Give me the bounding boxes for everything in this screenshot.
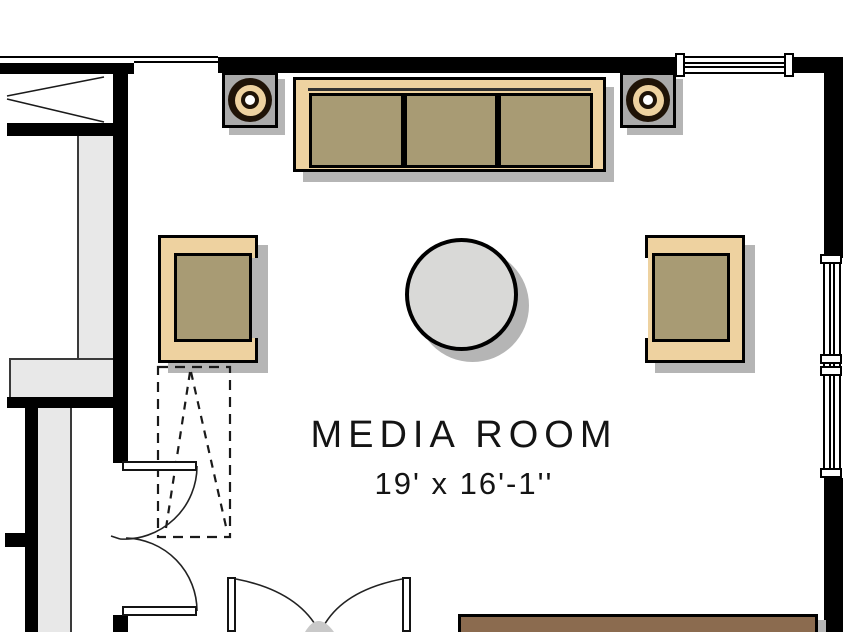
speaker-right xyxy=(620,72,676,128)
wall-stub-west xyxy=(5,533,25,547)
door-swing-arc-lower xyxy=(126,538,197,611)
window-right-cap-top xyxy=(820,254,842,264)
wall-jamb-bottom-left xyxy=(113,615,128,632)
french-door-leaf-left xyxy=(227,577,236,632)
wall-right-upper xyxy=(824,57,843,258)
sofa-cushion xyxy=(404,93,499,168)
sofa-cushion xyxy=(498,93,593,168)
armchair-right-cushion xyxy=(652,253,730,342)
wall-right-lower xyxy=(824,478,843,632)
room-name-label: MEDIA ROOM xyxy=(244,414,684,457)
window-right-cap-mullion-a xyxy=(820,354,842,364)
wall-top-exterior-line xyxy=(0,56,218,58)
wall-left-lower xyxy=(25,408,38,632)
sofa-cushions xyxy=(309,93,593,168)
dashed-overhead-outline xyxy=(158,367,230,537)
opening-header-line xyxy=(134,61,218,63)
sofa xyxy=(293,77,606,172)
armchair-right-notch xyxy=(631,258,648,338)
wall-left-ledge-top xyxy=(7,123,113,136)
adjacent-wall-fill-upper xyxy=(77,136,113,362)
cased-opening-marker xyxy=(7,77,104,122)
floor-plan: MEDIA ROOM 19' x 16'-1'' xyxy=(0,0,843,632)
speaker-left-cone-icon xyxy=(228,78,272,122)
wall-left-ledge-bottom xyxy=(7,397,113,408)
french-door-leaf-right xyxy=(402,577,411,632)
window-top-glazing-line xyxy=(681,62,789,64)
round-table xyxy=(405,238,518,351)
window-top-cap-left xyxy=(675,53,685,77)
wall-interior-left xyxy=(113,63,128,463)
room-dimensions-label: 19' x 16'-1'' xyxy=(244,466,684,502)
armchair-left-cushion xyxy=(174,253,252,342)
sofa-back-line xyxy=(308,88,591,91)
window-top-glazing-line xyxy=(681,66,789,68)
speaker-left xyxy=(222,72,278,128)
french-door-arc-left xyxy=(236,579,319,631)
adjacent-wall-fill-lower xyxy=(38,408,72,632)
adjacent-wall-fill-ledge xyxy=(9,358,113,397)
armchair-left-notch xyxy=(252,258,266,338)
sofa-cushion xyxy=(309,93,404,168)
window-top-cap-right xyxy=(784,53,794,77)
window-right-cap-mullion-b xyxy=(820,366,842,376)
door-leaf-lower xyxy=(122,606,197,616)
door-leaf-upper xyxy=(122,461,197,471)
speaker-right-cone-icon xyxy=(626,78,670,122)
door-swing-arc-upper xyxy=(111,466,197,539)
window-right-cap-bottom xyxy=(820,468,842,478)
french-door-arc-right xyxy=(321,579,402,631)
wall-top-main xyxy=(218,57,679,73)
french-door-center-shade xyxy=(305,621,334,632)
window-top-frame xyxy=(679,56,791,74)
console-table xyxy=(458,614,818,632)
